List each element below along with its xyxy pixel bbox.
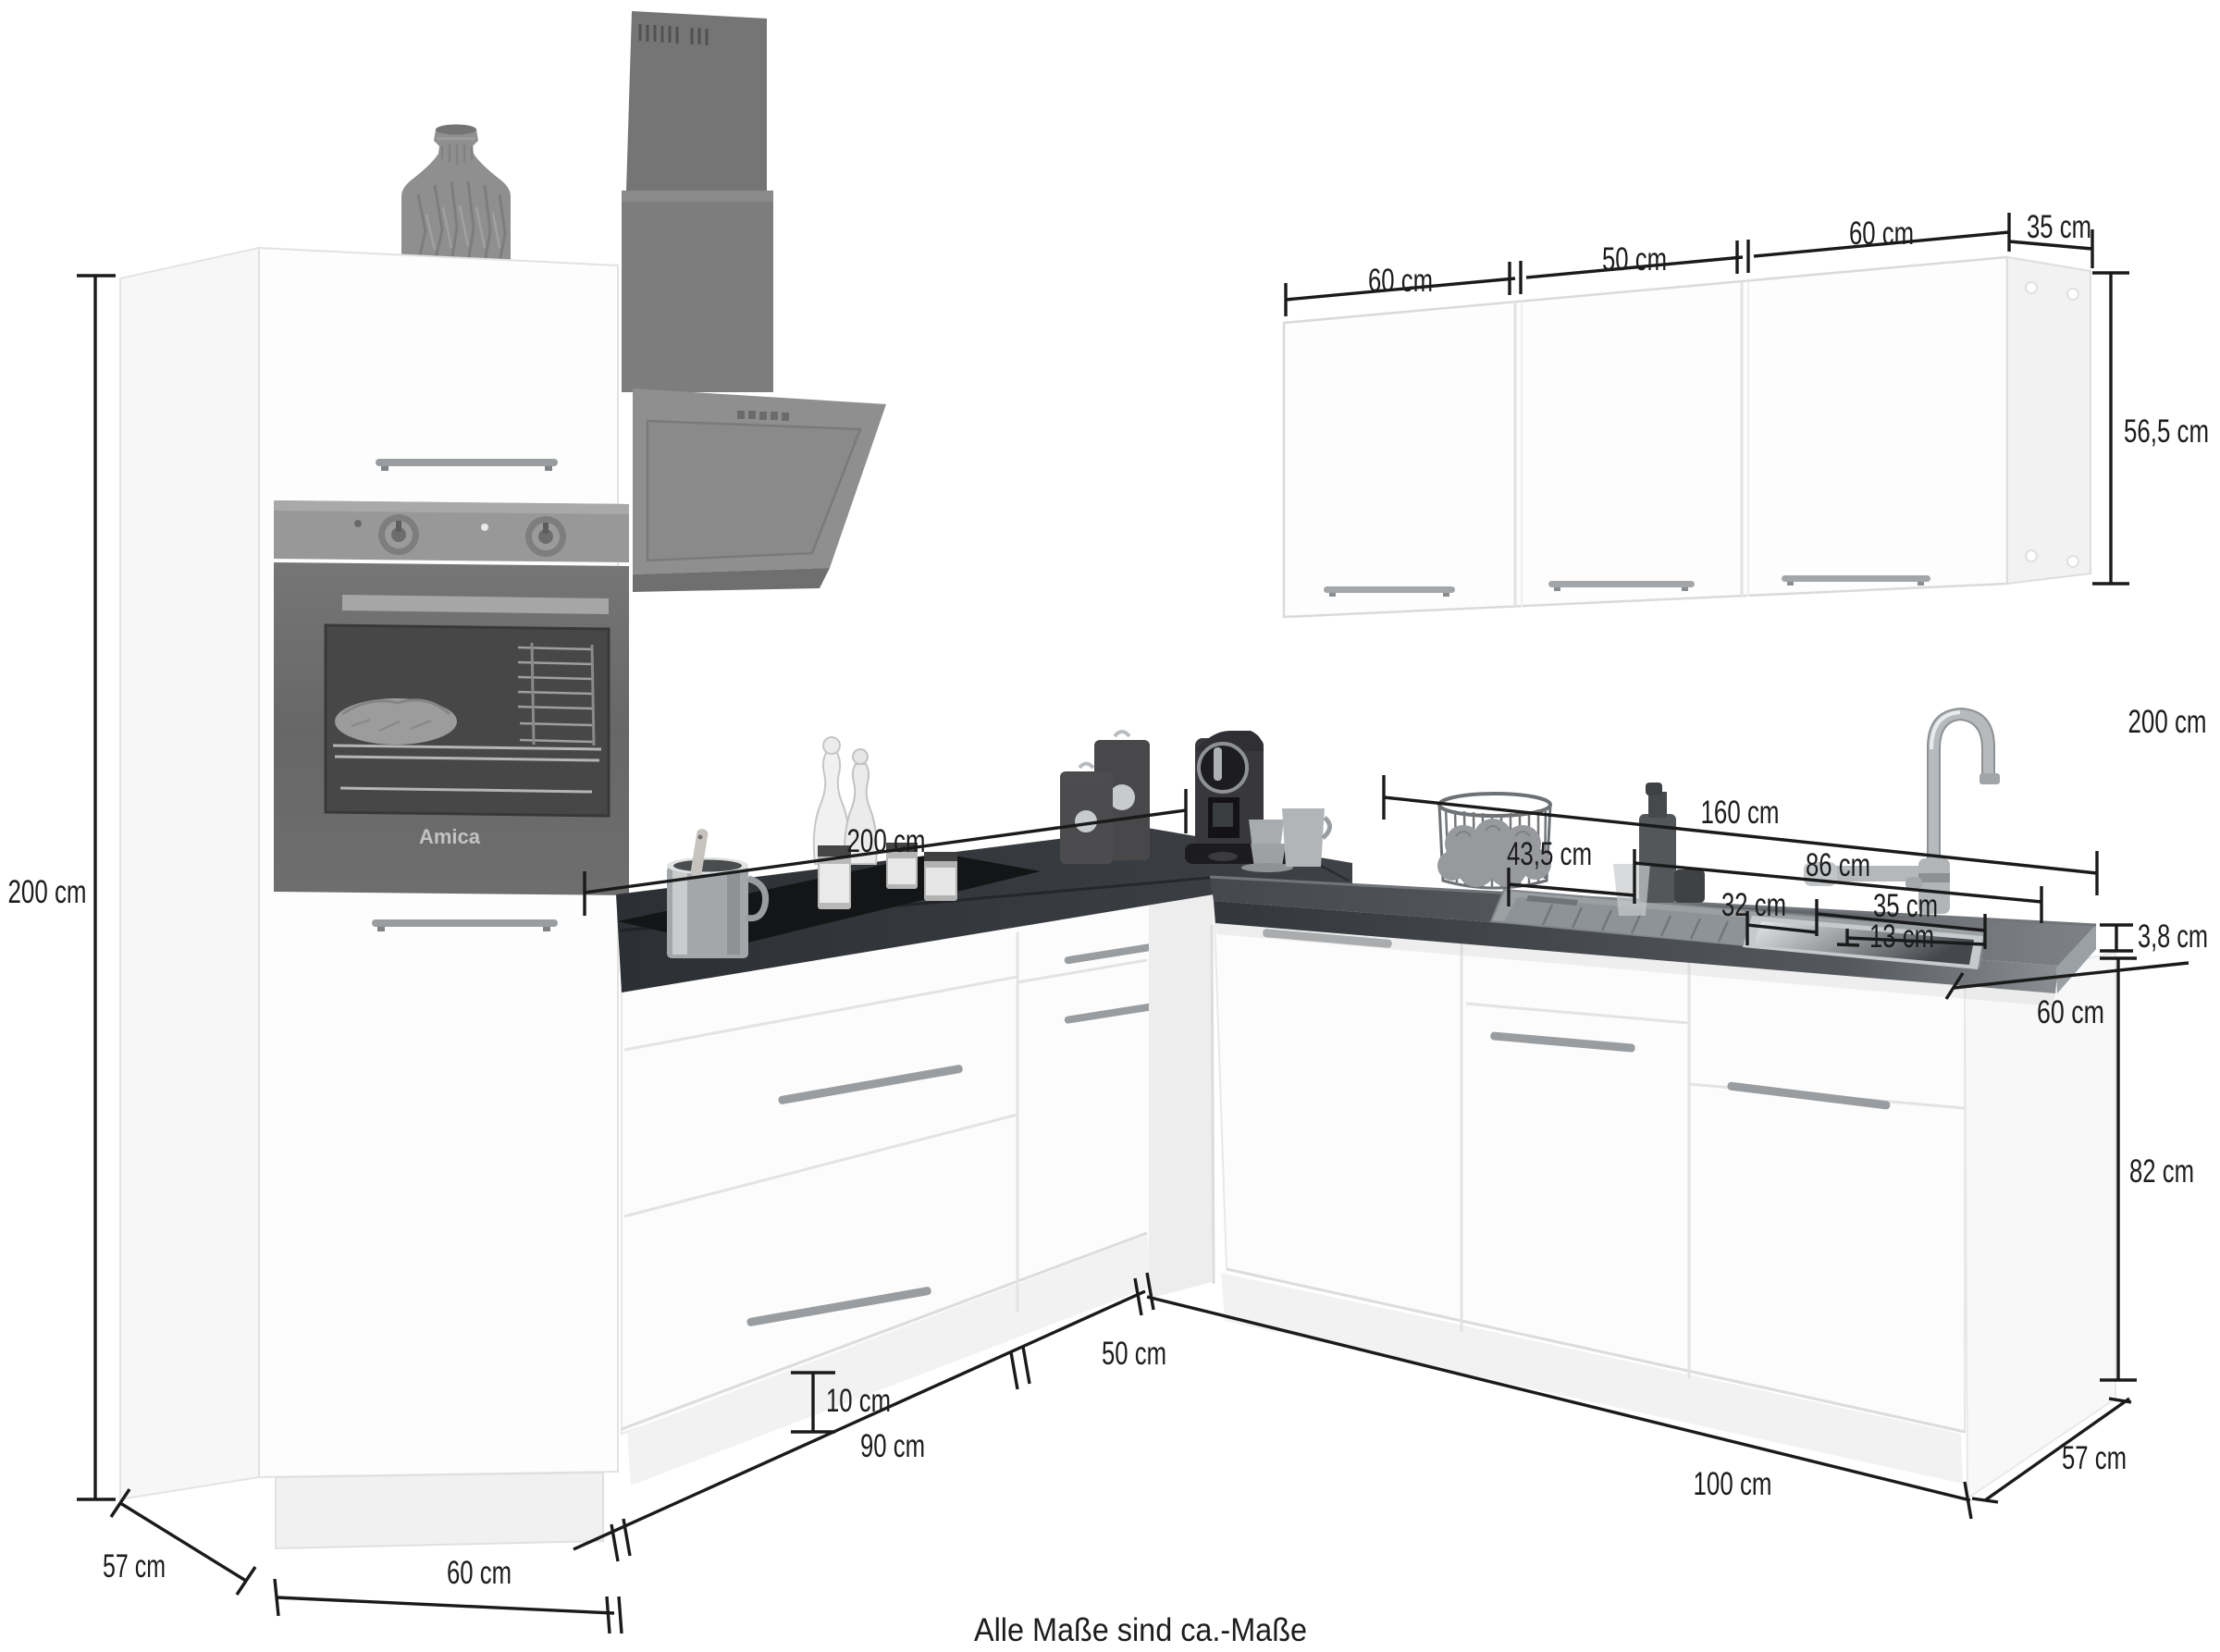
svg-text:60 cm: 60 cm [1368, 263, 1433, 299]
svg-text:90 cm: 90 cm [860, 1428, 925, 1464]
svg-text:13 cm: 13 cm [1869, 918, 1934, 955]
svg-text:3,8 cm: 3,8 cm [2138, 918, 2208, 955]
svg-text:50 cm: 50 cm [1102, 1336, 1166, 1372]
svg-text:100 cm: 100 cm [1694, 1466, 1772, 1502]
svg-text:82 cm: 82 cm [2129, 1153, 2194, 1190]
svg-text:50 cm: 50 cm [1602, 241, 1667, 277]
svg-text:56,5 cm: 56,5 cm [2124, 413, 2209, 450]
svg-text:35 cm: 35 cm [2027, 209, 2091, 245]
svg-text:60 cm: 60 cm [447, 1555, 512, 1591]
svg-text:160 cm: 160 cm [1701, 795, 1780, 831]
svg-text:86 cm: 86 cm [1806, 847, 1870, 883]
svg-text:200 cm: 200 cm [2128, 704, 2207, 740]
svg-text:60 cm: 60 cm [2037, 994, 2104, 1030]
svg-text:57 cm: 57 cm [103, 1548, 166, 1584]
svg-text:10 cm: 10 cm [826, 1383, 891, 1419]
svg-text:43,5 cm: 43,5 cm [1507, 836, 1592, 872]
svg-text:Alle Maße sind ca.-Maße: Alle Maße sind ca.-Maße [974, 1612, 1307, 1648]
svg-text:57 cm: 57 cm [2062, 1440, 2127, 1476]
svg-text:200 cm: 200 cm [847, 823, 926, 859]
svg-text:60 cm: 60 cm [1849, 216, 1914, 252]
svg-text:Amica: Amica [419, 825, 481, 848]
svg-text:200 cm: 200 cm [8, 874, 87, 910]
svg-text:32 cm: 32 cm [1721, 887, 1786, 923]
